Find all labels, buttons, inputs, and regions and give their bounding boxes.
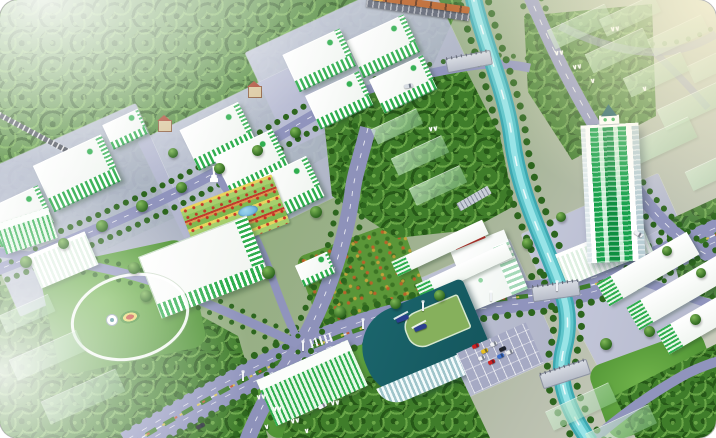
tree [334, 306, 346, 318]
street-light [242, 372, 244, 381]
road-bridge [539, 359, 591, 390]
flying-birds: ∨∨ [330, 399, 340, 407]
future-building [585, 27, 652, 73]
tree [390, 298, 401, 309]
street-light [422, 302, 424, 311]
canal-weir [456, 186, 492, 212]
tree [96, 220, 108, 232]
flying-birds: ∨∨ [554, 50, 564, 58]
future-building [623, 51, 690, 97]
tree [214, 163, 225, 174]
industrial-park-rendering: ∨∨∨∨∨∨∨∨∨∨∨∨∨∨∨∨∨∨∨∨ [0, 0, 716, 438]
flying-birds: ∨ [590, 78, 595, 85]
gazebo [106, 314, 118, 326]
factory-building [33, 135, 121, 212]
tree [20, 256, 32, 268]
street-light [490, 292, 492, 301]
flying-birds: ∨∨ [571, 63, 581, 72]
tree [58, 238, 69, 249]
tree [252, 145, 263, 156]
tree [128, 262, 140, 274]
future-building [647, 14, 709, 57]
flying-birds: ∨ [641, 86, 647, 94]
tree [168, 148, 178, 158]
street-light [556, 282, 558, 291]
headquarters-tower [580, 123, 645, 264]
tree [696, 268, 706, 278]
tree [140, 290, 152, 302]
tree [136, 200, 148, 212]
future-building [9, 330, 86, 381]
future-building [409, 165, 468, 206]
tree [662, 246, 672, 256]
future-building [687, 43, 716, 83]
tree [600, 338, 612, 350]
car [196, 422, 206, 430]
future-building [391, 135, 450, 176]
future-building [547, 3, 614, 49]
flying-birds: ∨∨ [610, 25, 620, 33]
flying-birds: ∨∨ [289, 417, 299, 426]
factory-building [295, 252, 335, 286]
tree [690, 314, 701, 325]
pagoda-pavilion [248, 86, 262, 98]
tree [176, 182, 187, 193]
factory-building [102, 109, 147, 149]
tree [522, 238, 533, 249]
buildings-layer: ∨∨∨∨∨∨∨∨∨∨∨∨∨∨∨∨∨∨∨∨ [0, 0, 716, 438]
future-building [0, 294, 56, 333]
flying-birds: ∨∨ [428, 125, 438, 133]
flying-birds: ∨∨ [256, 393, 266, 401]
flying-birds: ∨ [304, 428, 309, 435]
tree [434, 290, 445, 301]
road-bridge [445, 50, 493, 74]
tree [644, 326, 655, 337]
future-building [684, 146, 716, 191]
future-building [371, 108, 423, 145]
flying-birds: ∨ [263, 424, 269, 432]
tree [290, 127, 301, 138]
tree [556, 212, 566, 222]
future-building [40, 368, 125, 424]
street-light [302, 342, 304, 351]
pagoda-pavilion [158, 120, 172, 132]
flying-birds: ∨∨ [272, 406, 282, 414]
crosswalk [309, 333, 333, 348]
street-light [362, 320, 364, 329]
tree [262, 266, 275, 279]
tree [310, 206, 322, 218]
